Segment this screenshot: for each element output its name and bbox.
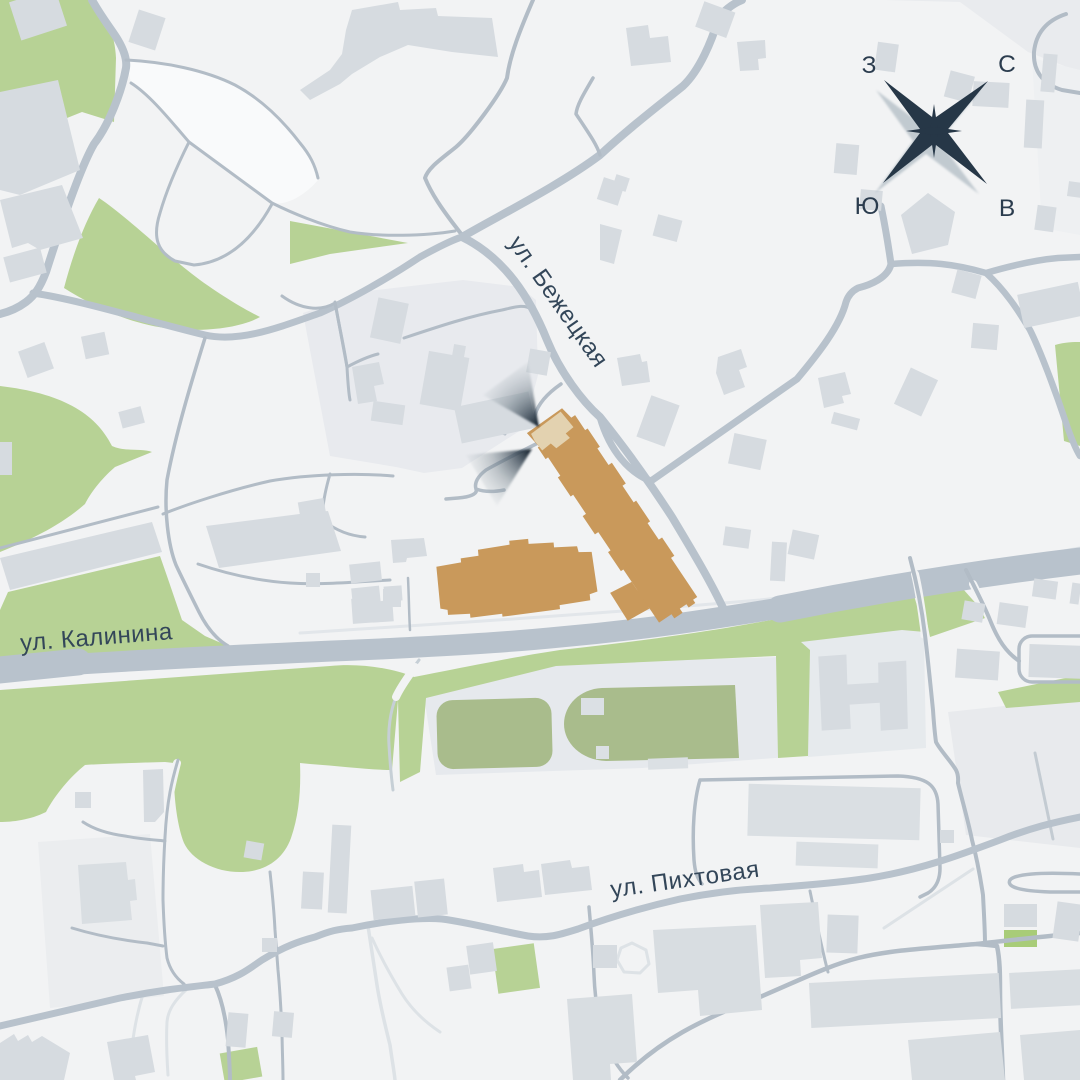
svg-text:С: С	[998, 51, 1016, 78]
svg-text:З: З	[862, 52, 877, 79]
svg-text:В: В	[999, 195, 1015, 222]
svg-text:Ю: Ю	[855, 193, 880, 220]
